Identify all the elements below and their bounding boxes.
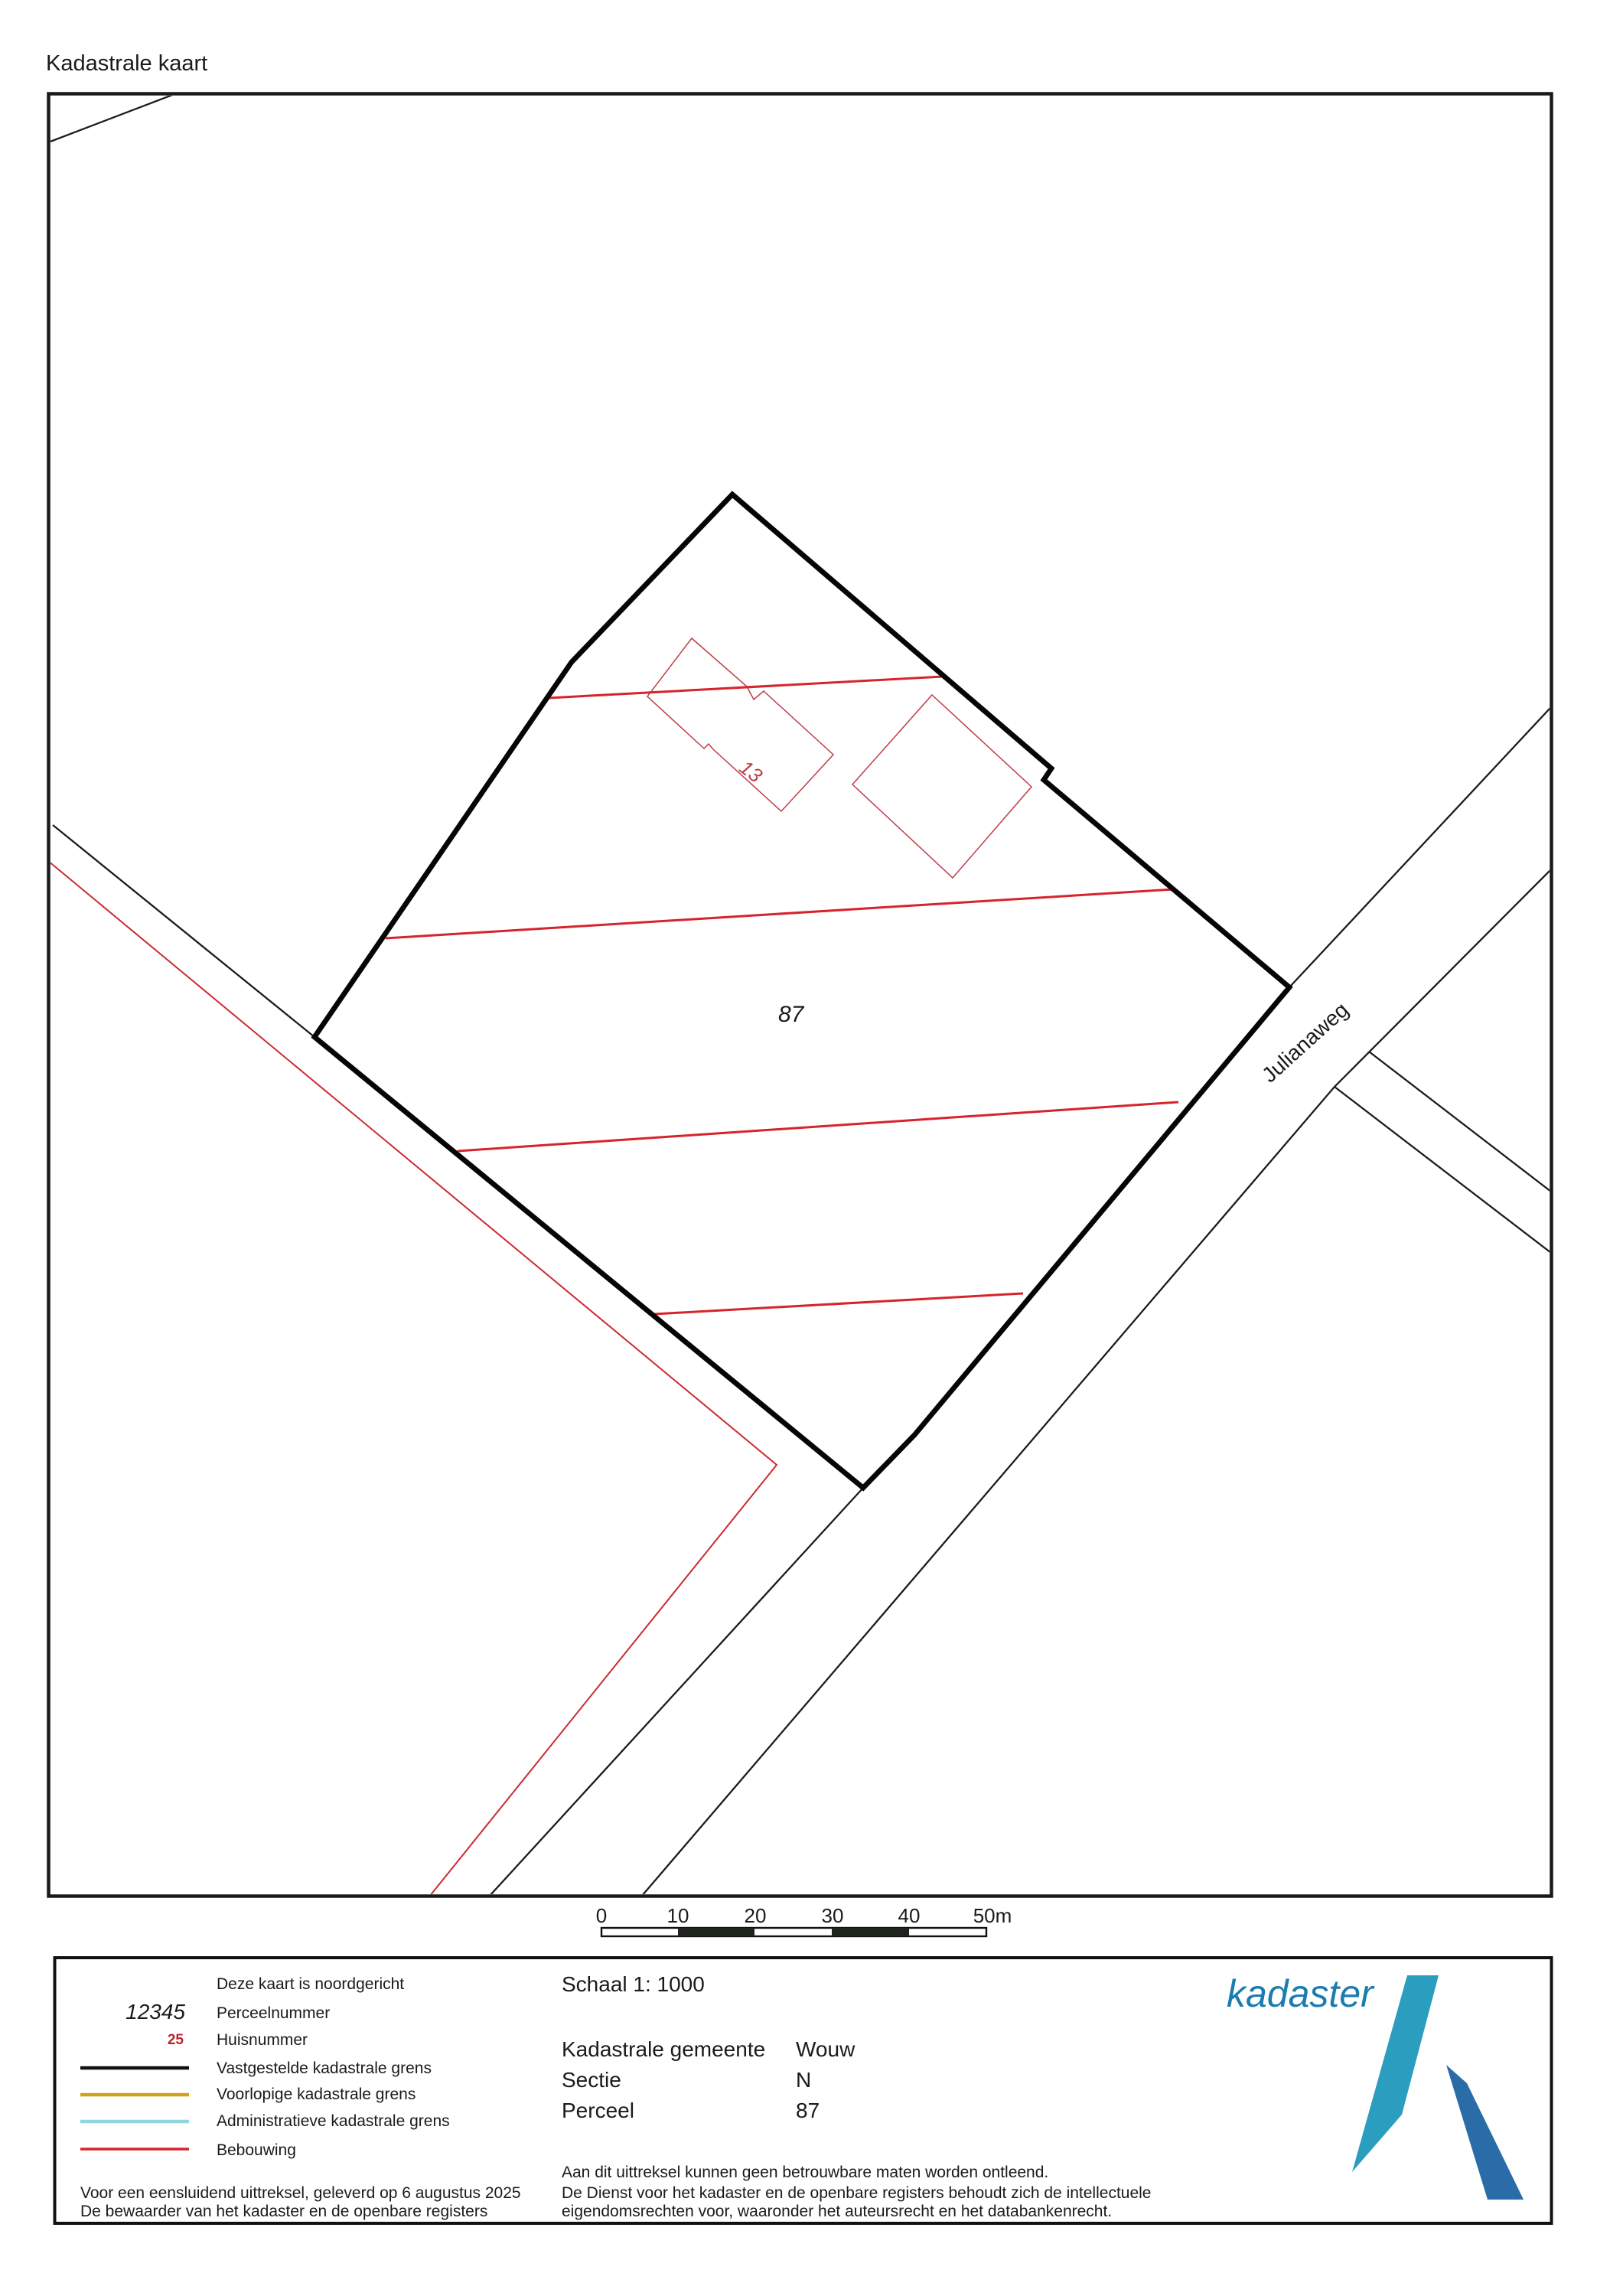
svg-text:12345: 12345 xyxy=(125,2000,185,2024)
svg-text:Aan dit uittreksel kunnen geen: Aan dit uittreksel kunnen geen betrouwba… xyxy=(562,2164,1048,2181)
svg-text:Voorlopige kadastrale grens: Voorlopige kadastrale grens xyxy=(217,2086,416,2103)
svg-text:10: 10 xyxy=(667,1904,689,1927)
svg-text:Deze kaart is noordgericht: Deze kaart is noordgericht xyxy=(217,1975,404,1993)
svg-text:Voor een eensluidend uittrekse: Voor een eensluidend uittreksel, gelever… xyxy=(80,2184,521,2202)
svg-text:20: 20 xyxy=(745,1904,767,1927)
svg-text:Vastgestelde kadastrale grens: Vastgestelde kadastrale grens xyxy=(217,2060,432,2077)
svg-text:Kadastrale gemeente: Kadastrale gemeente xyxy=(562,2037,765,2061)
svg-text:Huisnummer: Huisnummer xyxy=(217,2031,308,2049)
svg-text:50m: 50m xyxy=(973,1904,1012,1927)
svg-text:Perceelnummer: Perceelnummer xyxy=(217,2004,330,2022)
svg-text:0: 0 xyxy=(596,1904,607,1927)
svg-text:Sectie: Sectie xyxy=(562,2068,621,2092)
svg-text:Wouw: Wouw xyxy=(796,2037,855,2061)
svg-text:87: 87 xyxy=(778,1002,805,1027)
svg-text:30: 30 xyxy=(822,1904,844,1927)
svg-text:Administratieve kadastrale gre: Administratieve kadastrale grens xyxy=(217,2112,450,2130)
svg-text:De Dienst voor het kadaster en: De Dienst voor het kadaster en de openba… xyxy=(562,2184,1151,2202)
svg-text:40: 40 xyxy=(898,1904,921,1927)
svg-text:Bebouwing: Bebouwing xyxy=(217,2141,296,2159)
svg-text:25: 25 xyxy=(168,2032,184,2048)
svg-text:N: N xyxy=(796,2068,811,2092)
svg-text:eigendomsrechten voor, waarond: eigendomsrechten voor, waaronder het aut… xyxy=(562,2203,1112,2220)
svg-text:De bewaarder van het kadaster: De bewaarder van het kadaster en de open… xyxy=(80,2203,487,2220)
svg-text:87: 87 xyxy=(796,2099,820,2122)
svg-text:kadaster: kadaster xyxy=(1227,1972,1375,2015)
svg-text:Perceel: Perceel xyxy=(562,2099,634,2122)
svg-text:Schaal 1: 1000: Schaal 1: 1000 xyxy=(562,1972,705,1996)
svg-text:Kadastrale kaart: Kadastrale kaart xyxy=(46,51,207,76)
